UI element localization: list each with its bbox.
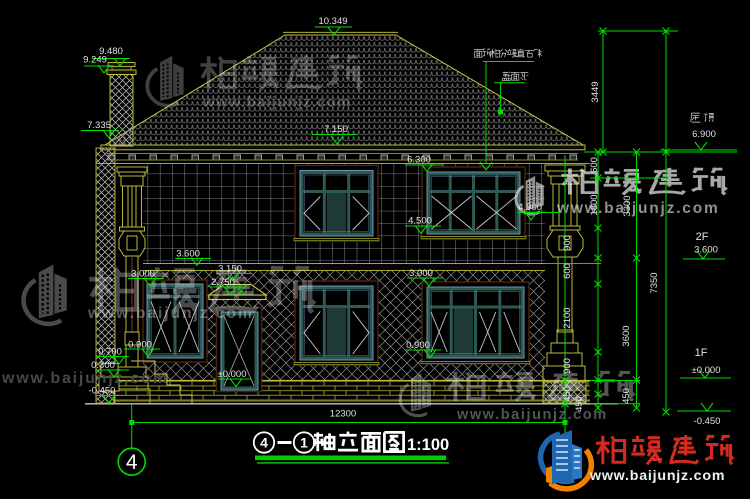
svg-text:12300: 12300 xyxy=(330,409,356,420)
svg-text:2F: 2F xyxy=(696,231,709,243)
svg-text:1F: 1F xyxy=(695,347,708,359)
svg-text:4: 4 xyxy=(260,435,268,451)
svg-text:3600: 3600 xyxy=(621,325,632,346)
svg-text:2.750: 2.750 xyxy=(211,277,235,288)
svg-text:3300: 3300 xyxy=(622,195,633,216)
svg-text:6.900: 6.900 xyxy=(692,129,716,140)
svg-text:1: 1 xyxy=(300,435,308,451)
svg-text:www.baijunjz.com: www.baijunjz.com xyxy=(589,468,725,484)
svg-text:7.335: 7.335 xyxy=(87,120,111,131)
svg-text:7.150: 7.150 xyxy=(324,124,348,135)
svg-text:9.249: 9.249 xyxy=(83,55,107,66)
svg-text:0.300: 0.300 xyxy=(91,360,115,371)
svg-text:4.500: 4.500 xyxy=(408,216,432,227)
svg-text:0.900: 0.900 xyxy=(128,340,152,351)
svg-text:1800: 1800 xyxy=(589,194,600,215)
svg-text:4: 4 xyxy=(126,451,138,474)
svg-text:1:100: 1:100 xyxy=(407,436,449,454)
svg-text:450: 450 xyxy=(562,386,573,402)
svg-text:2100: 2100 xyxy=(562,307,573,328)
svg-text:www.baijunjz.com: www.baijunjz.com xyxy=(87,305,254,322)
svg-text:±0.000: ±0.000 xyxy=(218,369,247,380)
svg-text:3.000: 3.000 xyxy=(409,268,433,279)
svg-text:600: 600 xyxy=(589,157,600,173)
svg-text:450: 450 xyxy=(574,396,585,412)
svg-text:-0.450: -0.450 xyxy=(89,386,116,397)
svg-text:10.349: 10.349 xyxy=(318,16,347,27)
svg-text:3.150: 3.150 xyxy=(218,264,242,275)
svg-text:0.700: 0.700 xyxy=(98,347,122,358)
svg-text:900: 900 xyxy=(562,358,573,374)
svg-text:3.000: 3.000 xyxy=(131,269,155,280)
svg-text:3.600: 3.600 xyxy=(176,249,200,260)
svg-text:3449: 3449 xyxy=(590,81,601,102)
svg-text:-0.450: -0.450 xyxy=(694,416,721,427)
svg-text:6.300: 6.300 xyxy=(407,155,431,166)
svg-text:www.baijunjz.com: www.baijunjz.com xyxy=(556,200,720,217)
svg-text:450: 450 xyxy=(621,388,632,404)
svg-text:3.600: 3.600 xyxy=(694,245,718,256)
svg-text:4.900: 4.900 xyxy=(518,202,542,213)
svg-text:0.900: 0.900 xyxy=(406,340,430,351)
svg-text:www.baijunjz.com: www.baijunjz.com xyxy=(202,94,352,111)
svg-text:900: 900 xyxy=(562,235,573,251)
svg-text:www.baijunjz.com: www.baijunjz.com xyxy=(1,370,169,387)
svg-text:±0.000: ±0.000 xyxy=(692,365,721,376)
svg-text:600: 600 xyxy=(562,263,573,279)
svg-text:7350: 7350 xyxy=(649,272,660,293)
